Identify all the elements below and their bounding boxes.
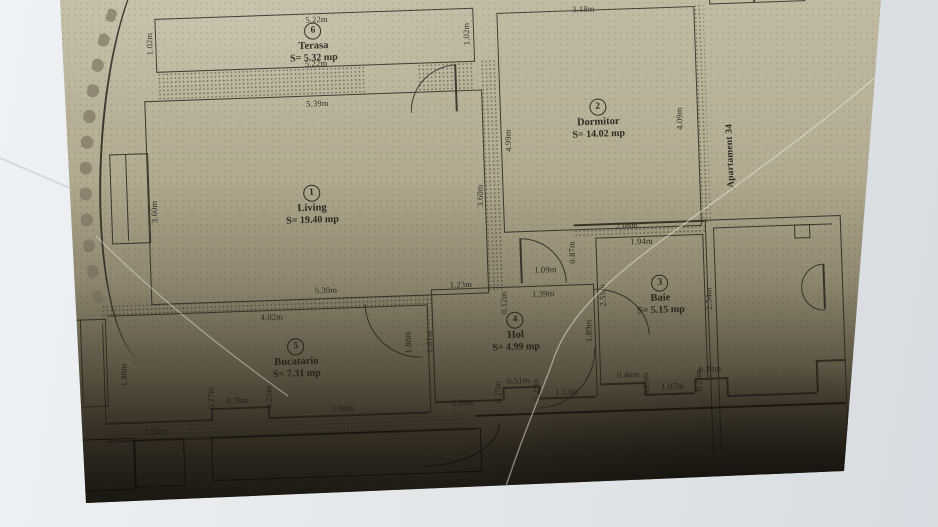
dim-baie-top-194: 1.94m — [630, 236, 653, 247]
room-area: S= 19.40 mp — [286, 214, 339, 227]
dim-hol-bottom-113: 1.13m — [555, 386, 578, 397]
dim-hol-step-025b: 0.25m — [530, 378, 541, 401]
living-window — [109, 153, 151, 244]
kitchen-window — [64, 319, 109, 408]
dim-bottom-046: 0.46m — [617, 369, 640, 380]
dim-terasa-bottom: 5.22m — [305, 58, 328, 69]
dim-bottom-038: 0.38m — [699, 363, 722, 374]
room-name: Terasa — [298, 40, 328, 53]
dim-hol-step-051: 0.51m — [507, 375, 530, 386]
dim-kitchen-step-025: 0.25m — [263, 386, 274, 409]
dim-living-top: 5.39m — [306, 98, 329, 109]
dim-hol-top-012: 0.12m — [498, 291, 509, 314]
dim-hol-top-139: 1.39m — [532, 288, 555, 299]
dim-terasa-top: 5.22m — [305, 14, 328, 25]
dim-kitchen-right-201: 2.01m — [423, 330, 434, 353]
room-area: S= 7.31 mp — [273, 368, 321, 381]
dim-living-right: 3.60m — [474, 184, 485, 207]
dim-hol-087: 0.87m — [566, 241, 577, 264]
room-area: S= 4.99 mp — [492, 341, 540, 354]
apartment-number-label: Apartament 34 — [724, 124, 736, 188]
dim-terasa-left: 1.02m — [144, 33, 155, 56]
dim-kitchen-step-078: 0.78m — [226, 395, 249, 406]
room-label-hol: 4 Hol S= 4.99 mp — [491, 311, 540, 354]
room-area: S= 14.02 mp — [572, 128, 625, 141]
dim-dormitor-top: 3.18m — [572, 4, 595, 15]
wall-line — [600, 382, 644, 385]
dim-hol-step-025a: 0.25m — [492, 381, 503, 404]
dim-bottom-025a: 0.25m — [640, 373, 651, 396]
dim-hol-door-109: 1.09m — [534, 264, 557, 275]
room-number-badge: 3 — [651, 274, 669, 292]
floor-plan-drawing: 6 Terasa S= 5.32 mp 2 Dormitor S= 14.02 … — [0, 0, 938, 527]
dim-baie-left-255: 2.55m — [597, 284, 608, 307]
dim-baie-right-254: 2.54m — [703, 287, 714, 310]
room-label-dormitor: 2 Dormitor S= 14.02 mp — [571, 98, 625, 141]
room-name: Hol — [507, 329, 524, 342]
room-name: Baie — [650, 292, 670, 305]
room-right-inner-wall — [713, 223, 840, 453]
top-right-partial-room — [709, 0, 806, 4]
room-label-baie: 3 Baie S= 5.15 mp — [636, 274, 685, 317]
dim-baie-top-208: 2.08m — [615, 220, 638, 231]
dim-hol-top-123: 1.23m — [449, 279, 472, 290]
room-number-badge: 2 — [589, 98, 607, 116]
dim-kitchen-top: 4.02m — [260, 312, 283, 323]
lower-structure-rect — [134, 438, 186, 488]
dim-baie-left-189: 1.89m — [583, 319, 594, 342]
room-area: S= 5.15 mp — [637, 304, 685, 317]
hol-top-door-arc — [519, 237, 567, 285]
room-number-badge: 1 — [303, 184, 321, 202]
dim-kitchen-bottom-198: 1.98m — [332, 403, 355, 414]
dim-dormitor-left: 4.99m — [502, 129, 513, 152]
room-label-living: 1 Living S= 19.40 mp — [285, 184, 339, 227]
dim-living-bottom: 5.39m — [315, 285, 338, 296]
room-label-bucatario: 5 Bucatario S= 7.31 mp — [272, 338, 321, 381]
photo-of-floor-plan: 6 Terasa S= 5.32 mp 2 Dormitor S= 14.02 … — [0, 0, 938, 527]
room-name: Living — [297, 202, 327, 215]
room-number-badge: 6 — [304, 22, 322, 40]
room-number-badge: 5 — [287, 338, 305, 356]
right-room-notch — [794, 224, 810, 239]
wall-line — [753, 0, 755, 2]
dim-kitchen-step-027: 0.27m — [205, 387, 216, 410]
dim-dormitor-right: 4.09m — [674, 107, 685, 130]
room-number-badge: 4 — [506, 311, 524, 329]
lower-structure-rect — [64, 438, 136, 492]
dim-hol-bottom-099: 0.99m — [452, 397, 475, 408]
dim-living-left: 3.60m — [149, 201, 160, 224]
dim-kitchen-left: 1.88m — [118, 364, 129, 387]
dim-bottom-107: 1.07m — [661, 381, 684, 392]
lower-structure-rect — [211, 428, 482, 481]
dim-kitchen-right-188: 1.88m — [402, 331, 413, 354]
floor-plan-paper: 6 Terasa S= 5.32 mp 2 Dormitor S= 14.02 … — [0, 0, 938, 527]
wall-line — [645, 392, 695, 395]
dim-terasa-right: 1.02m — [461, 23, 472, 46]
dim-kitchen-bottom-126: 1.26m — [144, 426, 167, 437]
